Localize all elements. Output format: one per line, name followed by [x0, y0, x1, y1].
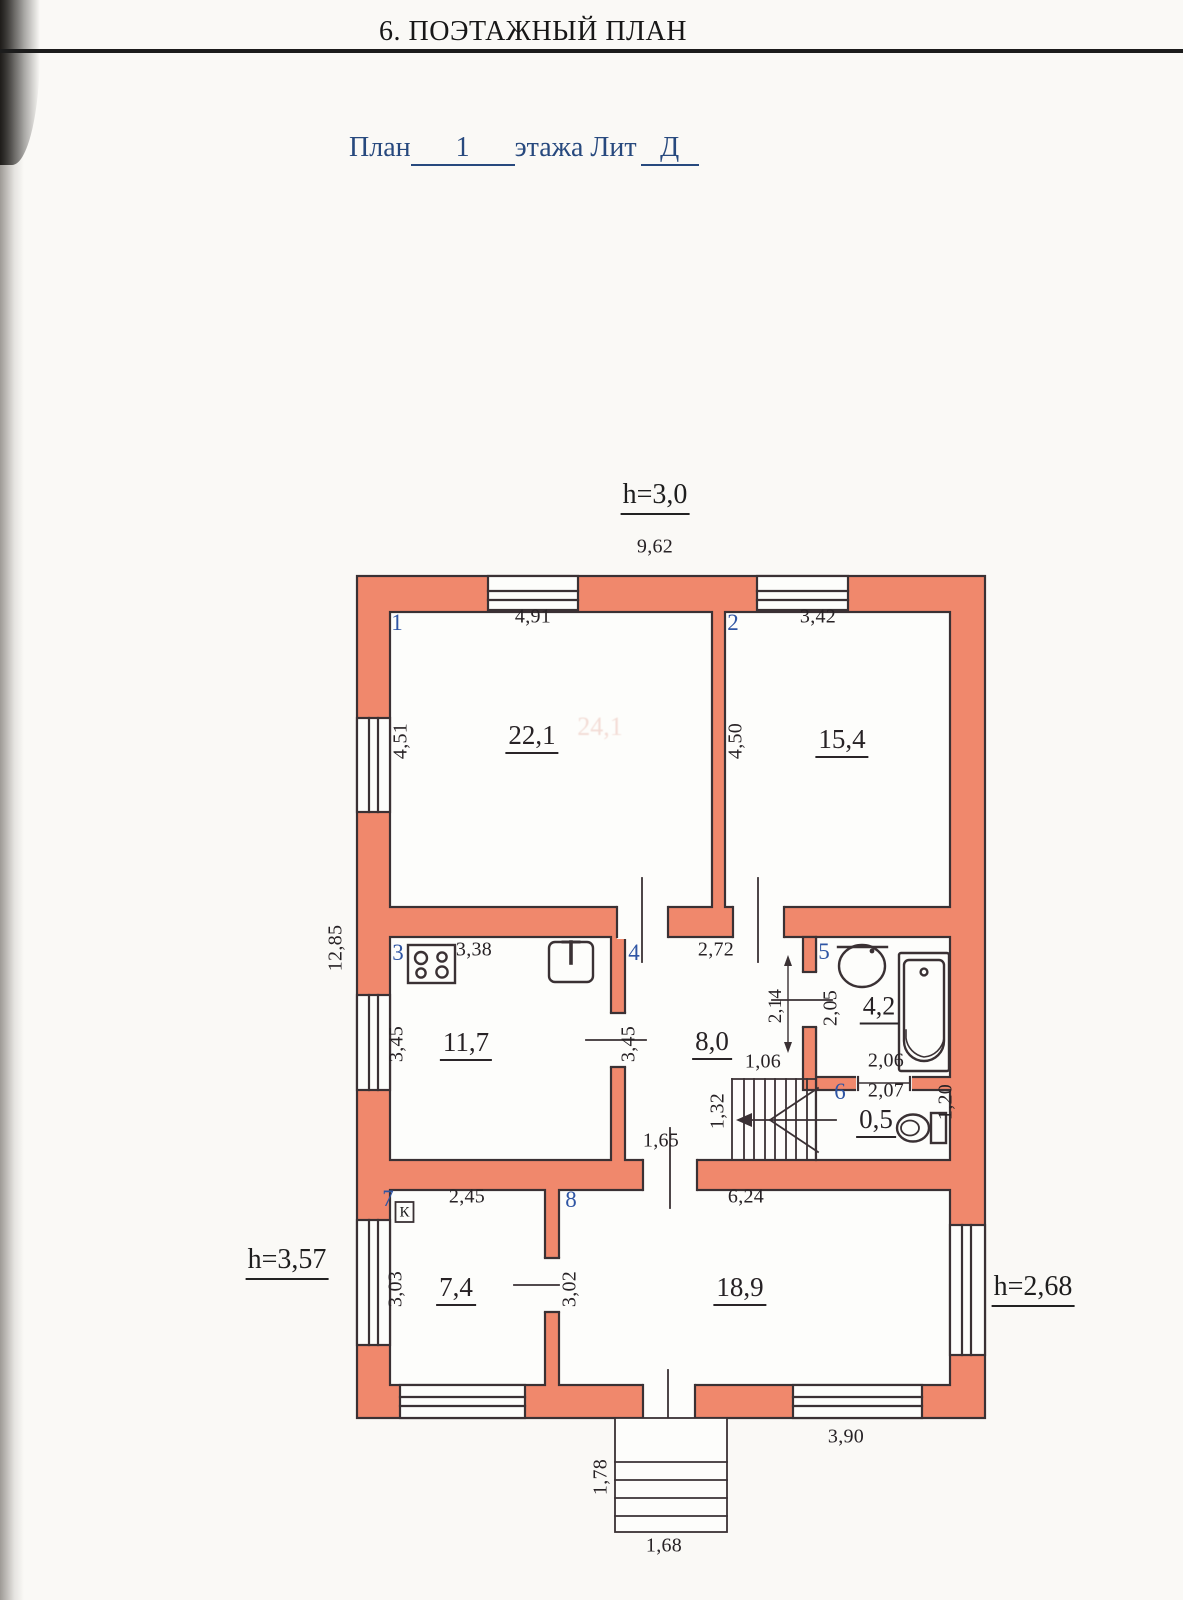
header-rule [0, 49, 1183, 53]
room-5-height: 2,05 [820, 990, 843, 1026]
room-4-niche-dim: 2,14 [765, 989, 787, 1023]
room-1-area: 22,1 [505, 720, 558, 754]
window-bottom-room7 [400, 1385, 525, 1418]
room-2-number: 2 [727, 610, 739, 636]
room-3-number: 3 [392, 940, 404, 966]
room-4-area: 8,0 [692, 1026, 732, 1060]
room-1-width: 4,91 [515, 606, 551, 629]
dim-porch-depth: 1,78 [590, 1459, 613, 1495]
room-2-width: 3,42 [800, 606, 836, 629]
stair-run-dim: 1,32 [707, 1093, 730, 1129]
room-6-number: 6 [834, 1079, 846, 1105]
room-5-area: 4,2 [860, 992, 899, 1025]
floor-plan-drawing [0, 0, 1183, 1600]
room-6-height: 1,20 [935, 1084, 958, 1120]
room-3-width: 3,38 [456, 939, 492, 962]
dim-top-width: 9,62 [637, 536, 673, 559]
dim-porch-width: 1,68 [646, 1535, 682, 1558]
room-2-floor [725, 612, 950, 907]
hall-door-dim: 1,65 [643, 1130, 679, 1153]
room-8-width: 6,24 [728, 1186, 764, 1209]
ceiling-height-left: h=3,57 [246, 1244, 329, 1280]
room-5-number: 5 [818, 939, 830, 965]
room-5-width: 2,06 [868, 1050, 904, 1073]
scanner-page-edge [0, 0, 24, 1600]
dim-bottom-right: 3,90 [828, 1426, 864, 1449]
room-6-area: 0,5 [856, 1104, 896, 1138]
room-8-height: 3,02 [559, 1271, 582, 1307]
ceiling-height-right: h=2,68 [992, 1271, 1075, 1307]
room-4-width: 2,72 [698, 939, 734, 962]
room-7-area: 7,4 [436, 1272, 476, 1306]
room-2-height: 4,50 [725, 723, 748, 759]
window-right-room8 [950, 1225, 985, 1355]
room-7-height: 3,03 [385, 1271, 408, 1307]
caption-word-plan: План [349, 132, 411, 163]
room-6-width: 2,07 [868, 1080, 904, 1103]
room-3-area: 11,7 [440, 1027, 492, 1061]
scanned-floor-plan-page: { "scan": { "header_title": "6. ПОЭТАЖНЫ… [0, 0, 1183, 1600]
room-4-number: 4 [628, 940, 640, 966]
room-8-number: 8 [565, 1187, 577, 1213]
page-title: 6. ПОЭТАЖНЫЙ ПЛАН [379, 16, 687, 48]
room-3-height: 3,45 [386, 1026, 409, 1062]
room-2-area: 15,4 [815, 724, 868, 758]
room-1-number: 1 [391, 610, 403, 636]
room-4-height: 3,45 [618, 1026, 641, 1062]
boiler-symbol: К [399, 1204, 409, 1221]
room-8-area: 18,9 [713, 1272, 766, 1306]
room-1-floor [390, 612, 712, 907]
room-7-width: 2,45 [449, 1186, 485, 1209]
caption-floor-number: 1 [411, 132, 515, 166]
caption-liter: Д [641, 132, 699, 166]
stair-width-dim: 1,06 [745, 1051, 781, 1074]
plan-caption: План1этажа ЛитД [349, 132, 699, 166]
ceiling-height-top: h=3,0 [621, 479, 690, 515]
window-left-room1 [357, 718, 390, 812]
dim-left-height: 12,85 [325, 925, 348, 972]
entrance-porch [615, 1418, 727, 1532]
room-3-floor [390, 937, 611, 1160]
caption-word-floor: этажа Лит [515, 132, 637, 163]
window-bottom-room8 [793, 1385, 922, 1418]
bleed-through-text: 24,1 [577, 712, 623, 742]
room-7-number: 7 [382, 1186, 394, 1212]
room-1-height: 4,51 [390, 723, 413, 759]
